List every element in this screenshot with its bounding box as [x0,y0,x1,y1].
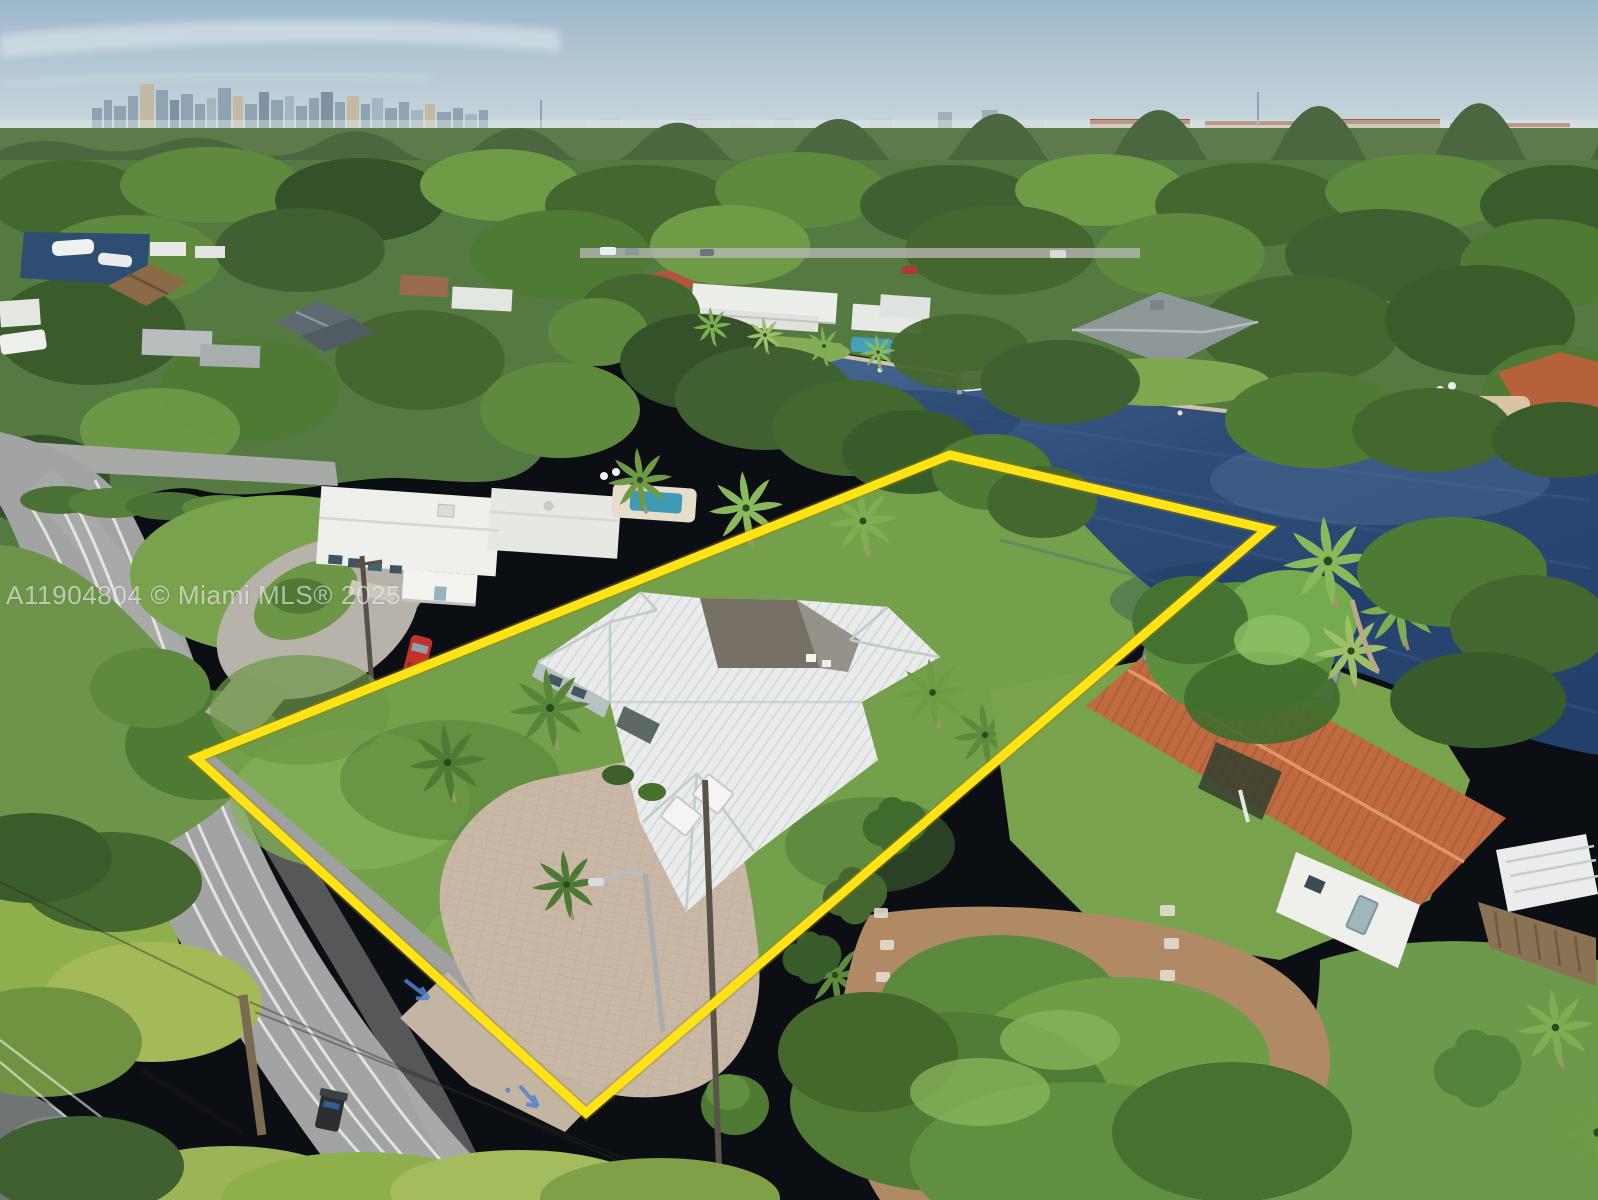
chimney [438,504,455,517]
lamp-head [588,878,604,886]
storage-shed [1496,834,1598,912]
corner-house-roof [0,299,41,328]
pole-shadow [142,1070,243,1133]
boat [52,239,95,257]
aerial-photo: A11904804 © Miami MLS® 2025 [0,0,1598,1200]
aerial-photo-canvas [0,0,1598,1200]
